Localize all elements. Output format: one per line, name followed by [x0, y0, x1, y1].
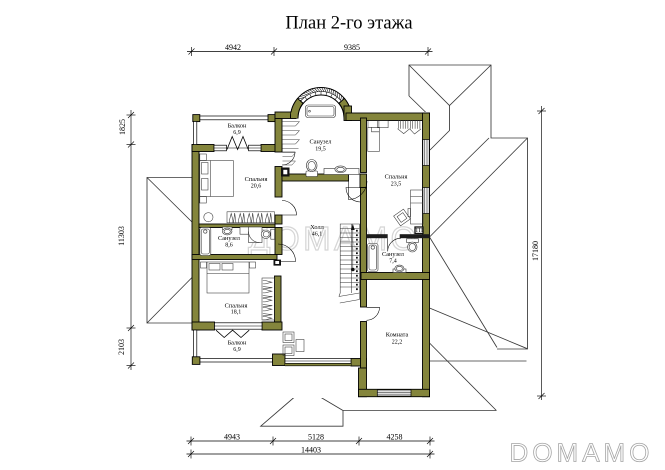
svg-text:Балкон: Балкон [228, 340, 247, 347]
svg-text:Спальня: Спальня [385, 174, 408, 181]
svg-text:2103: 2103 [117, 339, 126, 355]
svg-text:Спальня: Спальня [245, 176, 268, 183]
svg-text:Холл: Холл [310, 224, 324, 231]
svg-text:7,4: 7,4 [389, 259, 397, 265]
svg-text:Санузел: Санузел [310, 139, 332, 146]
svg-text:1825: 1825 [118, 119, 127, 135]
svg-text:20,6: 20,6 [251, 184, 262, 190]
svg-text:6,9: 6,9 [233, 347, 241, 353]
svg-text:4943: 4943 [224, 433, 240, 442]
svg-text:22,2: 22,2 [392, 340, 403, 346]
svg-text:4258: 4258 [387, 433, 403, 442]
svg-text:ТП: ТП [415, 228, 424, 234]
svg-text:4942: 4942 [225, 43, 241, 52]
svg-text:План 2-го этажа: План 2-го этажа [285, 14, 412, 34]
svg-text:11303: 11303 [117, 226, 126, 246]
svg-text:Санузел: Санузел [382, 251, 404, 258]
svg-text:Комната: Комната [386, 332, 409, 339]
svg-text:14403: 14403 [301, 445, 321, 454]
svg-text:Балкон: Балкон [228, 123, 247, 130]
svg-text:46,1: 46,1 [312, 232, 323, 238]
svg-text:Спальня: Спальня [225, 302, 248, 309]
svg-text:DOMAMO: DOMAMO [510, 438, 654, 468]
svg-text:19,5: 19,5 [315, 146, 326, 152]
svg-text:17180: 17180 [531, 241, 540, 261]
svg-text:5128: 5128 [308, 433, 324, 442]
svg-text:6,9: 6,9 [233, 130, 241, 136]
svg-text:8,6: 8,6 [225, 242, 233, 248]
svg-text:23,5: 23,5 [391, 182, 402, 188]
svg-text:Санузел: Санузел [218, 235, 240, 242]
svg-text:9385: 9385 [344, 43, 360, 52]
svg-text:18,1: 18,1 [231, 310, 242, 316]
